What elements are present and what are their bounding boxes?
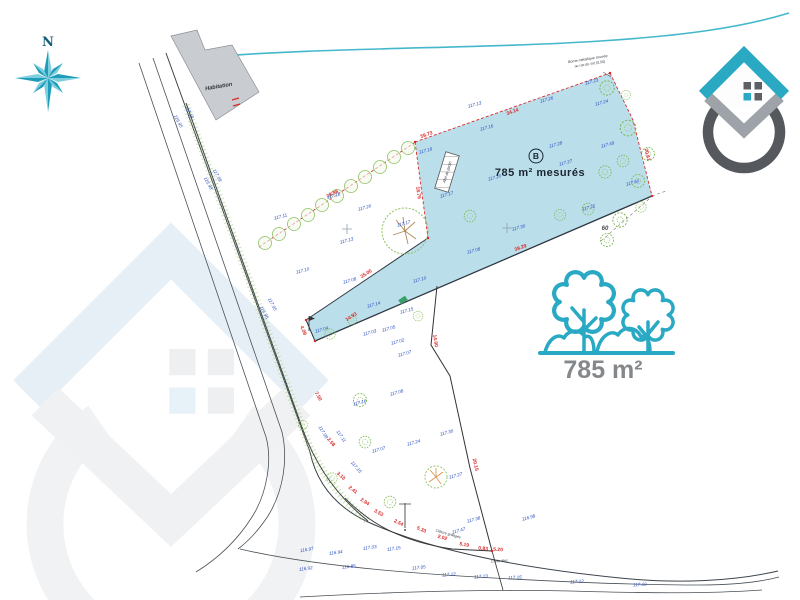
compass-rose: N — [15, 35, 81, 112]
measurement-label: 20.61 — [643, 148, 652, 162]
elevation-label: 117.08 — [318, 425, 330, 440]
elevation-label: 117.16 — [352, 398, 367, 406]
elevation-label: 116.85 — [342, 563, 357, 569]
compass-star-icon — [15, 50, 81, 112]
elevation-label: 116.98 — [521, 513, 536, 521]
elevation-label: 117.12 — [442, 571, 457, 577]
elevation-label: 117.08 — [389, 388, 404, 396]
elevation-label: 116.92 — [299, 565, 314, 572]
site-plan-page: Habitation — [0, 0, 800, 600]
measurement-label: 4.09 — [298, 325, 307, 336]
orange-tree — [425, 466, 447, 488]
elevation-label: 117.13 — [474, 574, 488, 580]
compass-north-label: N — [42, 35, 54, 50]
elevation-label: 116.98 — [203, 176, 214, 191]
measurement-label: 5.19 — [459, 541, 470, 549]
elevation-label: 117.38 — [466, 515, 481, 523]
measurement-label: 3.10 — [335, 471, 346, 482]
elevation-label: 116.94 — [329, 549, 344, 556]
elevation-label: 117.10 — [633, 582, 647, 588]
measurement-label: 5.20 — [493, 547, 503, 554]
house-pin-logo-icon — [703, 54, 785, 168]
elevation-label: 117.05 — [267, 297, 278, 312]
elevation-label: 117.17 — [396, 219, 411, 227]
elevation-label: 117.08 — [342, 276, 357, 284]
elevation-label: 117.19 — [184, 105, 195, 120]
measurement-label: 18.76 — [414, 186, 422, 199]
elevation-label: 117.03 — [363, 544, 378, 551]
elevation-label: 117.07 — [397, 349, 412, 357]
elevation-label: 117.03 — [362, 328, 377, 336]
elevation-label: 117.07 — [371, 445, 386, 453]
measurement-label: 14.00 — [431, 334, 439, 347]
measurement-label: 20.15 — [471, 458, 480, 472]
elevation-label: 117.24 — [406, 438, 421, 446]
elevation-label: 117.05 — [412, 564, 427, 570]
elevation-label: 117.15 — [508, 575, 522, 581]
neighbor-parcel-label: 60 — [602, 226, 609, 232]
parcel-area-label: 785 m² mesurés — [495, 167, 585, 179]
elevation-label: 117.02 — [390, 337, 405, 345]
measurement-label: 7.50 — [313, 391, 323, 403]
elevation-label: 117.30 — [439, 428, 454, 436]
cable-label: Câble élec. — [491, 558, 509, 563]
elevation-label: 117.10 — [295, 266, 310, 274]
elevation-label: 117.20 — [357, 203, 372, 211]
elevation-label: 117.11 — [274, 212, 289, 220]
trees-icon — [540, 272, 673, 353]
area-badge-value: 785 m² — [563, 356, 642, 384]
big-tree — [382, 208, 428, 254]
parcel-point-label: B — [533, 151, 539, 161]
measurement-label: 2.41 — [347, 485, 359, 496]
measurement-label: 2.58 — [325, 437, 336, 448]
measurement-label: 2.94 — [359, 497, 371, 508]
measurement-label: 2.54 — [393, 518, 405, 528]
elevation-label: 117.13 — [467, 100, 482, 108]
elevation-label: 117.15 — [350, 460, 363, 474]
measurement-label: 3.53 — [373, 508, 385, 518]
measurement-label: 5.33 — [416, 525, 427, 534]
measurement-label: 0.83 — [478, 546, 489, 553]
header-swoosh — [196, 13, 789, 58]
elevation-label: 117.47 — [451, 526, 466, 534]
elevation-label: 117.05 — [381, 324, 396, 332]
elevation-label: 117.15 — [399, 306, 414, 314]
elevation-label: 117.13 — [339, 236, 354, 244]
area-badge: 785 m² — [540, 272, 673, 384]
elevation-label: 117.27 — [448, 471, 463, 479]
elevation-label: 117.11 — [335, 429, 347, 443]
elevation-label: 117.15 — [387, 545, 402, 552]
elevation-label: 117.12 — [570, 579, 584, 585]
